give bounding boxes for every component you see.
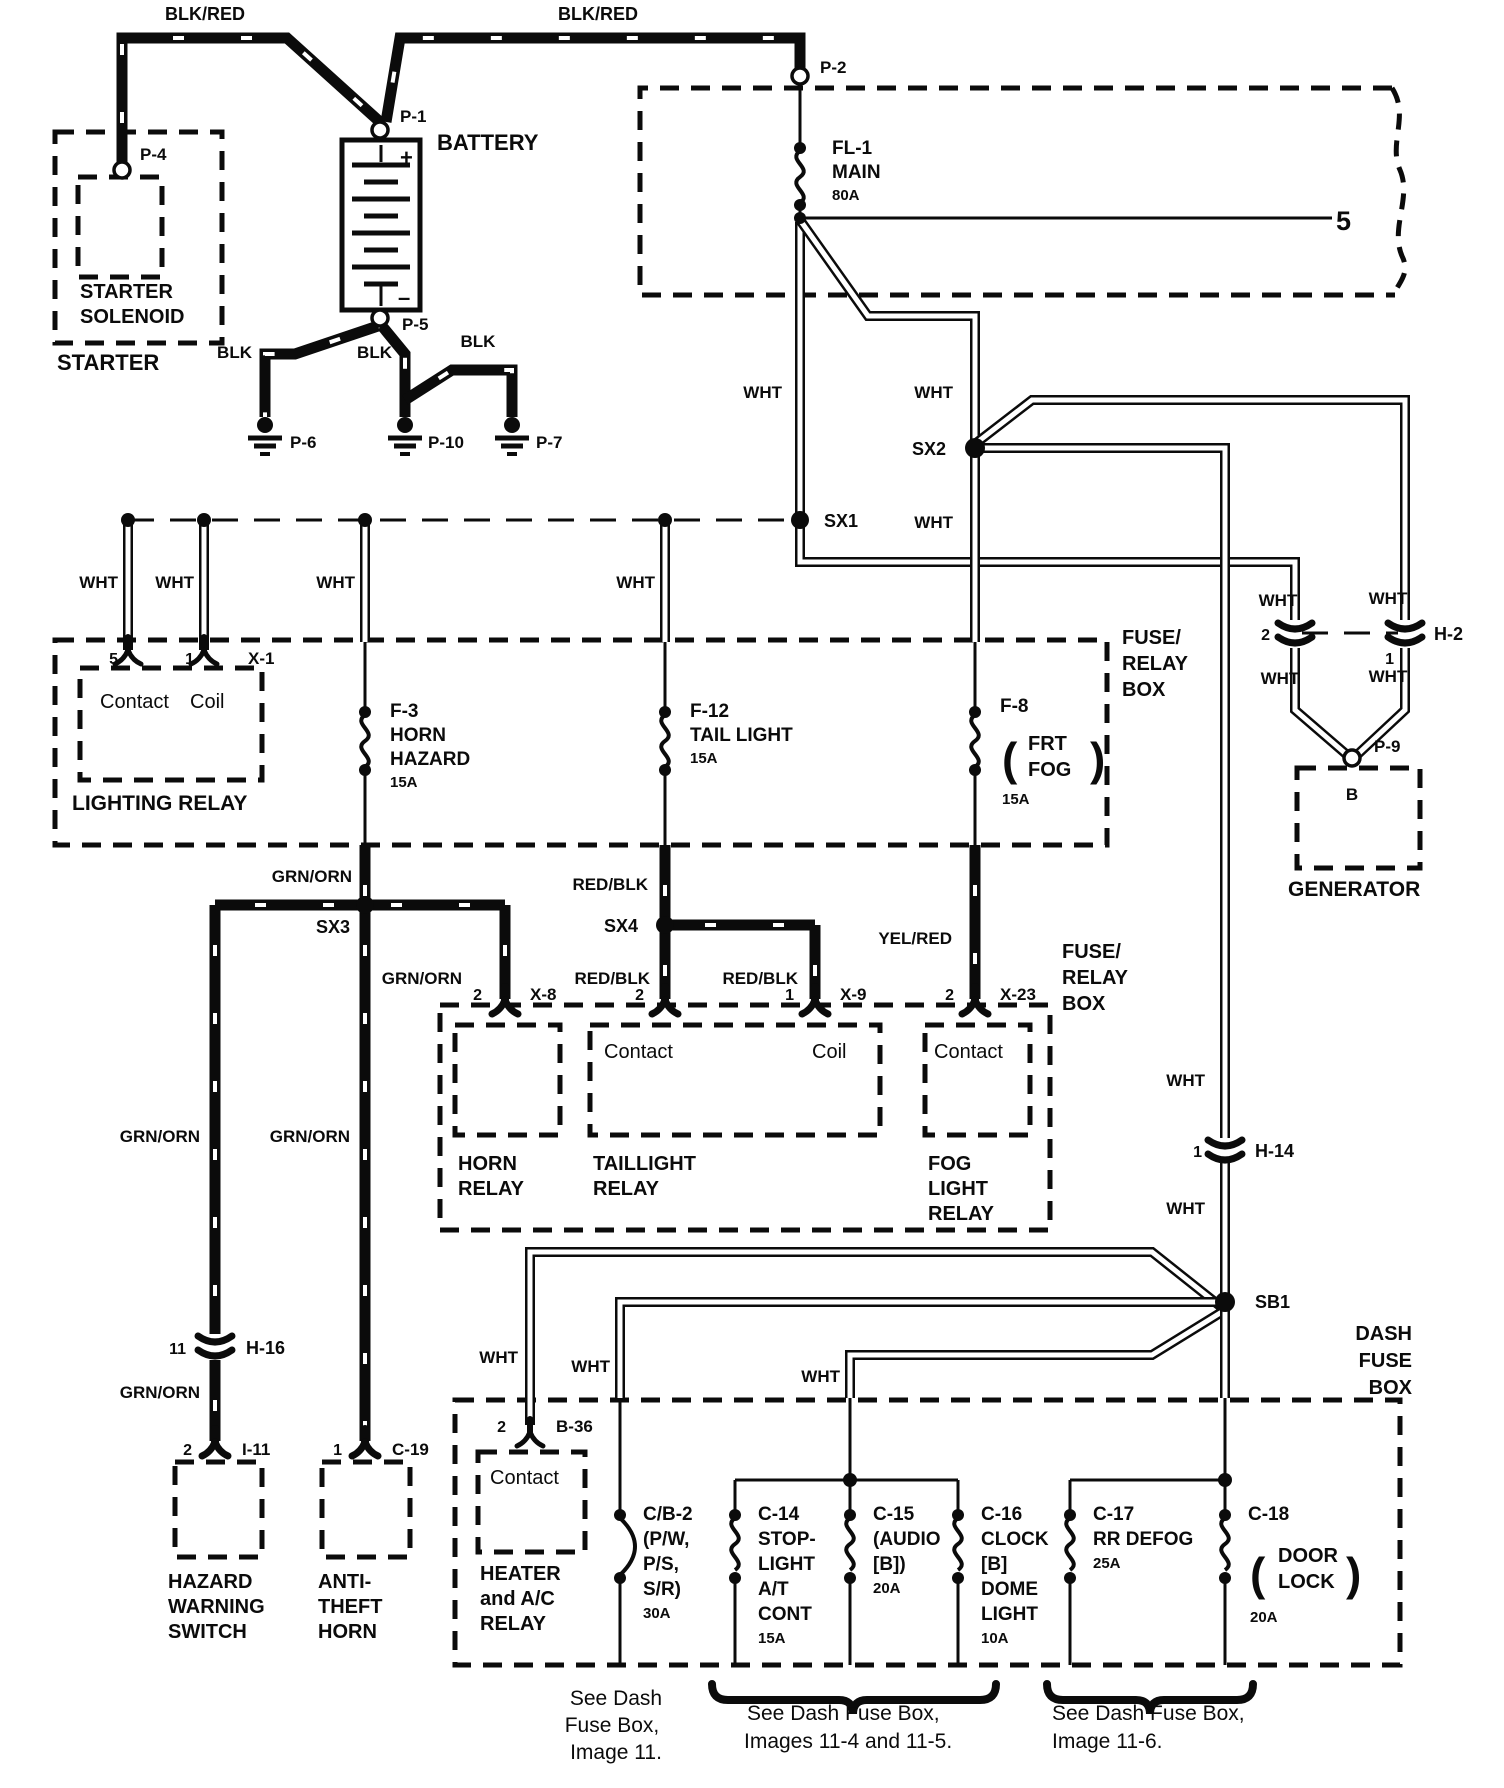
diagram-label: WHT bbox=[571, 1357, 610, 1376]
caption-see-dash-3: Image 11-6. bbox=[1052, 1730, 1163, 1753]
diagram-label: RELAY bbox=[1062, 967, 1129, 989]
diagram-label: 20A bbox=[1250, 1609, 1278, 1626]
diagram-label: RELAY bbox=[480, 1613, 547, 1635]
diagram-label: C-19 bbox=[392, 1440, 429, 1459]
ground-P-6 bbox=[257, 417, 273, 433]
diagram-label: P-10 bbox=[428, 433, 464, 452]
junction-dot bbox=[729, 1509, 741, 1521]
diagram-label: YEL/RED bbox=[878, 929, 952, 948]
diagram-label: X-9 bbox=[840, 985, 866, 1004]
diagram-label: RELAY bbox=[458, 1178, 525, 1200]
fuse-C-16 bbox=[954, 1518, 962, 1570]
caption-see-dash-1: Fuse Box, bbox=[565, 1714, 660, 1737]
caption-see-dash-3: See Dash Fuse Box, bbox=[1052, 1702, 1245, 1725]
diagram-label: FUSE/ bbox=[1062, 941, 1121, 963]
battery-label: BATTERY bbox=[437, 130, 539, 155]
terminal-fork bbox=[128, 650, 141, 664]
caption-see-dash-1: See Dash bbox=[570, 1687, 662, 1710]
diagram-label: RELAY bbox=[593, 1178, 660, 1200]
diagram-label: P-7 bbox=[536, 433, 562, 452]
junction-dot bbox=[844, 1572, 856, 1584]
diagram-label: 15A bbox=[758, 1630, 786, 1647]
diagram-label: 20A bbox=[873, 1580, 901, 1597]
diagram-label: HAZARD bbox=[168, 1571, 252, 1593]
diagram-label: ANTI- bbox=[318, 1571, 371, 1593]
diagram-label: F-8 bbox=[1000, 696, 1029, 717]
diagram-label: H-16 bbox=[246, 1338, 285, 1358]
junction-dot bbox=[1219, 1509, 1231, 1521]
diagram-label: 15A bbox=[690, 750, 718, 767]
diagram-label: 30A bbox=[643, 1605, 671, 1622]
diagram-label: WARNING bbox=[168, 1596, 265, 1618]
diagram-label: C-17 bbox=[1093, 1504, 1134, 1525]
diagram-label: I-11 bbox=[242, 1440, 270, 1459]
diagram-label: DOME bbox=[981, 1579, 1038, 1600]
generator-label: GENERATOR bbox=[1288, 878, 1420, 901]
diagram-label: GRN/ORN bbox=[270, 1127, 350, 1146]
wire-wht-core bbox=[975, 400, 1405, 620]
diagram-label: [B]) bbox=[873, 1554, 906, 1575]
diagram-label: 80A bbox=[832, 187, 860, 204]
diagram-label: P-1 bbox=[400, 107, 426, 126]
diagram-label: FL-1 bbox=[832, 138, 873, 159]
diagram-label: WHT bbox=[1369, 667, 1408, 686]
junction-dot bbox=[197, 513, 211, 527]
junction-dot bbox=[658, 513, 672, 527]
junction-dot bbox=[843, 1473, 857, 1487]
connector-H-14 bbox=[1208, 1140, 1242, 1146]
generator-box bbox=[1297, 768, 1420, 868]
diagram-label: TAILLIGHT bbox=[593, 1153, 696, 1175]
diagram-label: DASH bbox=[1355, 1323, 1412, 1345]
diagram-label: LOCK bbox=[1278, 1571, 1335, 1593]
diagram-label: BLK bbox=[357, 343, 393, 362]
junction-dot bbox=[1064, 1509, 1076, 1521]
diagram-label: RED/BLK bbox=[572, 875, 648, 894]
diagram-label: P-9 bbox=[1374, 737, 1400, 756]
wiring-diagram: BLK/REDBLK/REDP-4P-1BATTERY+–P-5STARTERS… bbox=[0, 0, 1504, 1788]
diagram-label: 11 bbox=[169, 1341, 186, 1358]
diagram-label: HORN bbox=[390, 725, 446, 746]
ground-P-7 bbox=[504, 417, 520, 433]
diagram-label: RED/BLK bbox=[722, 969, 798, 988]
diagram-label: 2 bbox=[945, 987, 954, 1004]
diagram-label: ) bbox=[1090, 733, 1105, 785]
diagram-label: Contact bbox=[604, 1041, 673, 1063]
diagram-label: LIGHT bbox=[758, 1554, 815, 1575]
diagram-label: SB1 bbox=[1255, 1292, 1290, 1312]
diagram-label: C-18 bbox=[1248, 1504, 1289, 1525]
terminal-fork bbox=[365, 1442, 378, 1456]
diagram-label: WHT bbox=[479, 1348, 518, 1367]
splice-SX2 bbox=[965, 438, 985, 458]
diagram-label: 15A bbox=[390, 774, 418, 791]
diagram-label: Coil bbox=[190, 691, 224, 713]
junction-dot bbox=[358, 513, 372, 527]
horn-relay-box bbox=[455, 1025, 560, 1135]
diagram-label: WHT bbox=[743, 383, 782, 402]
diagram-label: GRN/ORN bbox=[120, 1383, 200, 1402]
connector-H-16 bbox=[198, 1350, 232, 1356]
wire-wht bbox=[975, 400, 1405, 620]
diagram-label: C-15 bbox=[873, 1504, 915, 1525]
diagram-label: 1 bbox=[185, 651, 194, 668]
terminal-fork bbox=[530, 1432, 543, 1446]
diagram-label: RR DEFOG bbox=[1093, 1529, 1193, 1550]
fuse-C-17 bbox=[1066, 1518, 1074, 1570]
diagram-label: HEATER bbox=[480, 1563, 561, 1585]
diagram-label: SX4 bbox=[604, 916, 638, 936]
diagram-label: WHT bbox=[79, 573, 118, 592]
connector-P-4 bbox=[114, 162, 130, 178]
diagram-label: WHT bbox=[1166, 1199, 1205, 1218]
wire-wht bbox=[1295, 648, 1346, 754]
splice-SX3 bbox=[356, 896, 374, 914]
diagram-label: FUSE bbox=[1359, 1350, 1412, 1372]
diagram-label: B-36 bbox=[556, 1417, 593, 1436]
connector-P-9 bbox=[1344, 750, 1360, 766]
diagram-label: 25A bbox=[1093, 1555, 1121, 1572]
wire-color-blk-red: BLK/RED bbox=[165, 4, 245, 24]
diagram-label: H-2 bbox=[1434, 624, 1463, 644]
connector-H-2-pin1 bbox=[1388, 623, 1422, 629]
ground-P-10 bbox=[397, 417, 413, 433]
diagram-label: BLK bbox=[217, 343, 253, 362]
anti-theft-horn-box bbox=[322, 1462, 410, 1557]
junction-dot bbox=[1219, 1572, 1231, 1584]
diagram-label: 1 bbox=[1385, 651, 1394, 668]
terminal-fork bbox=[975, 1000, 988, 1014]
diagram-label: SX2 bbox=[912, 439, 946, 459]
junction-dot bbox=[614, 1509, 626, 1521]
diagram-label: C/B-2 bbox=[643, 1504, 693, 1525]
junction-dot bbox=[952, 1509, 964, 1521]
diagram-label: H-14 bbox=[1255, 1141, 1294, 1161]
wiring-diagram-page: BLK/REDBLK/REDP-4P-1BATTERY+–P-5STARTERS… bbox=[0, 0, 1504, 1788]
diagram-label: WHT bbox=[1369, 589, 1408, 608]
wire-wht-core bbox=[800, 220, 975, 440]
fuse-FL-1 bbox=[796, 151, 804, 203]
diagram-label: SX3 bbox=[316, 917, 350, 937]
diagram-label: Coil bbox=[812, 1041, 846, 1063]
diagram-label: WHT bbox=[914, 513, 953, 532]
lighting-relay-box bbox=[80, 668, 262, 780]
diagram-label: X-23 bbox=[1000, 985, 1036, 1004]
diagram-label: FRT bbox=[1028, 733, 1067, 755]
diagram-label: 2 bbox=[473, 987, 482, 1004]
diagram-label: 2 bbox=[183, 1442, 192, 1459]
diagram-label: FOG bbox=[1028, 759, 1071, 781]
diagram-label: DOOR bbox=[1278, 1545, 1339, 1567]
diagram-label: S/R) bbox=[643, 1579, 681, 1600]
caption-see-dash-2: Images 11-4 and 11-5. bbox=[744, 1730, 952, 1753]
diagram-label: SOLENOID bbox=[80, 306, 184, 328]
diagram-label: ) bbox=[1346, 1548, 1361, 1600]
diagram-label: (AUDIO bbox=[873, 1529, 941, 1550]
diagram-label: RELAY bbox=[928, 1203, 995, 1225]
diagram-label: ( bbox=[1002, 733, 1018, 785]
diagram-label: 15A bbox=[1002, 791, 1030, 808]
diagram-label: STOP- bbox=[758, 1529, 816, 1550]
diagram-label: X-1 bbox=[248, 649, 274, 668]
connector-H-16 bbox=[198, 1336, 232, 1342]
diagram-label: P-5 bbox=[402, 315, 428, 334]
junction-dot bbox=[121, 513, 135, 527]
wire-thick bbox=[265, 326, 378, 417]
diagram-label: A/T bbox=[758, 1579, 789, 1600]
main-power-box bbox=[640, 88, 1395, 295]
splice-SX1 bbox=[791, 511, 809, 529]
diagram-label: LIGHT bbox=[928, 1178, 988, 1200]
wire-thick bbox=[405, 370, 512, 417]
lighting-relay-label: LIGHTING RELAY bbox=[72, 792, 247, 815]
diagram-label: THEFT bbox=[318, 1596, 382, 1618]
connector-H-2-pin2 bbox=[1278, 623, 1312, 629]
terminal-fork bbox=[517, 1432, 530, 1446]
fuse-F-8 bbox=[971, 715, 979, 767]
diagram-label: STARTER bbox=[80, 281, 174, 303]
diagram-label: RELAY bbox=[1122, 653, 1189, 675]
diagram-label: CLOCK bbox=[981, 1529, 1049, 1550]
diagram-label: F-3 bbox=[390, 701, 419, 722]
wire-color-blk-red: BLK/RED bbox=[558, 4, 638, 24]
junction-dot bbox=[969, 764, 981, 776]
junction-dot bbox=[1218, 1473, 1232, 1487]
diagram-label: WHT bbox=[155, 573, 194, 592]
fuse-F-12 bbox=[661, 715, 669, 767]
diagram-label: B bbox=[1346, 785, 1358, 804]
junction-dot bbox=[729, 1572, 741, 1584]
main-power-box-torn-edge bbox=[1392, 88, 1405, 295]
diagram-label: WHT bbox=[316, 573, 355, 592]
diagram-label: HAZARD bbox=[390, 749, 470, 770]
diagram-label: WHT bbox=[801, 1367, 840, 1386]
diagram-label: 2 bbox=[497, 1419, 506, 1436]
caption-see-dash-1: Image 11. bbox=[570, 1741, 662, 1764]
diagram-label: Contact bbox=[100, 691, 169, 713]
diagram-label: ( bbox=[1250, 1548, 1266, 1600]
wire-wht-core bbox=[850, 1310, 1225, 1398]
diagram-label: CONT bbox=[758, 1604, 812, 1625]
junction-dot bbox=[359, 706, 371, 718]
junction-dot bbox=[614, 1572, 626, 1584]
connector-P-5 bbox=[372, 310, 388, 326]
diagram-label: GRN/ORN bbox=[272, 867, 352, 886]
junction-dot bbox=[794, 199, 806, 211]
diagram-label: HORN bbox=[458, 1153, 517, 1175]
diagram-label: WHT bbox=[1166, 1071, 1205, 1090]
diagram-label: SWITCH bbox=[168, 1621, 247, 1643]
starter-label: STARTER bbox=[57, 350, 159, 375]
diagram-label: P-4 bbox=[140, 145, 167, 164]
diagram-label: WHT bbox=[616, 573, 655, 592]
diagram-label: TAIL LIGHT bbox=[690, 725, 793, 746]
fuse-F-3 bbox=[361, 715, 369, 767]
caption-see-dash-2: See Dash Fuse Box, bbox=[747, 1702, 940, 1725]
diagram-label: Contact bbox=[490, 1467, 559, 1489]
diagram-label: and A/C bbox=[480, 1588, 555, 1610]
diagram-label: 1 bbox=[333, 1442, 342, 1459]
diagram-label: FOG bbox=[928, 1153, 971, 1175]
connector-H-14 bbox=[1208, 1154, 1242, 1160]
diagram-label: BOX bbox=[1122, 679, 1166, 701]
diagram-label: 10A bbox=[981, 1630, 1009, 1647]
connector-H-2-pin1 bbox=[1388, 637, 1422, 643]
wire-thick bbox=[382, 326, 405, 417]
fuse-C-15 bbox=[846, 1518, 854, 1570]
diagram-label: P/S, bbox=[643, 1554, 679, 1575]
hazard-switch-box bbox=[175, 1462, 262, 1557]
diagram-label: FUSE/ bbox=[1122, 627, 1181, 649]
breaker-CB-2 bbox=[620, 1518, 635, 1575]
diagram-label: 5 bbox=[109, 651, 118, 668]
splice-SB1 bbox=[1215, 1292, 1235, 1312]
terminal-fork bbox=[665, 1000, 678, 1014]
diagram-label: SX1 bbox=[824, 511, 858, 531]
continuation-marker-5: 5 bbox=[1336, 206, 1351, 236]
connector-H-2-pin2 bbox=[1278, 637, 1312, 643]
diagram-label: BLK bbox=[461, 332, 497, 351]
diagram-label: – bbox=[398, 285, 410, 310]
diagram-label: 2 bbox=[635, 987, 644, 1004]
diagram-label: LIGHT bbox=[981, 1604, 1038, 1625]
diagram-label: F-12 bbox=[690, 701, 729, 722]
junction-dot bbox=[844, 1509, 856, 1521]
diagram-label: X-8 bbox=[530, 985, 556, 1004]
junction-dot bbox=[794, 142, 806, 154]
diagram-label: 1 bbox=[1193, 1144, 1202, 1161]
junction-dot bbox=[659, 764, 671, 776]
diagram-label: WHT bbox=[914, 383, 953, 402]
diagram-label: WHT bbox=[1261, 669, 1300, 688]
junction-dot bbox=[952, 1572, 964, 1584]
wire-thick-ticks bbox=[386, 38, 800, 122]
diagram-label: P-6 bbox=[290, 433, 316, 452]
diagram-label: BOX bbox=[1062, 993, 1106, 1015]
junction-dot bbox=[359, 764, 371, 776]
diagram-label: GRN/ORN bbox=[382, 969, 462, 988]
connector-P-1 bbox=[372, 122, 388, 138]
splice-SX4 bbox=[656, 916, 674, 934]
diagram-label: RED/BLK bbox=[574, 969, 650, 988]
junction-dot bbox=[794, 212, 806, 224]
junction-dot bbox=[1064, 1572, 1076, 1584]
diagram-label: C-16 bbox=[981, 1504, 1022, 1525]
diagram-label: P-2 bbox=[820, 58, 846, 77]
connector-P-2 bbox=[792, 68, 808, 84]
diagram-label: HORN bbox=[318, 1621, 377, 1643]
terminal-fork bbox=[215, 1442, 228, 1456]
junction-dot bbox=[659, 706, 671, 718]
diagram-label: MAIN bbox=[832, 162, 881, 183]
diagram-label: GRN/ORN bbox=[120, 1127, 200, 1146]
diagram-label: + bbox=[400, 145, 413, 170]
diagram-label: (P/W, bbox=[643, 1529, 689, 1550]
diagram-label: [B] bbox=[981, 1554, 1007, 1575]
wire-thick bbox=[386, 38, 800, 122]
diagram-label: C-14 bbox=[758, 1504, 800, 1525]
diagram-label: 1 bbox=[785, 987, 794, 1004]
junction-dot bbox=[969, 706, 981, 718]
starter-solenoid-box bbox=[78, 177, 162, 277]
fuse-C-18 bbox=[1221, 1518, 1229, 1570]
diagram-label: Contact bbox=[934, 1041, 1003, 1063]
diagram-label: 2 bbox=[1261, 627, 1270, 644]
fuse-C-14 bbox=[731, 1518, 739, 1570]
diagram-label: WHT bbox=[1259, 591, 1298, 610]
terminal-fork bbox=[204, 650, 217, 664]
diagram-label: BOX bbox=[1369, 1377, 1413, 1399]
